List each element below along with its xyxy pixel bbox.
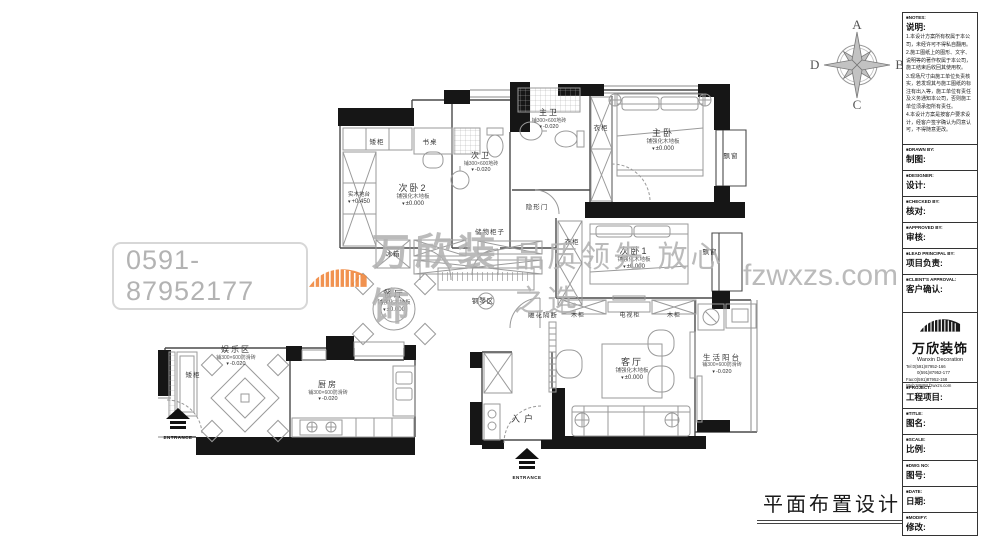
room-name: 主卫 (532, 108, 567, 118)
room-name: 次卫 (464, 151, 499, 161)
room-floor-spec: 铺300×600防滑砖 (702, 362, 742, 368)
room-label-master-bath: 主卫 铺300×600地砖 -0.020 (532, 108, 567, 131)
room-level: ±0.000 (615, 375, 648, 383)
company-name-cn: 万欣装饰 (906, 338, 974, 357)
field-modify: ■MODIFY: 修改: (903, 513, 977, 535)
room-level: +0.450 (348, 199, 370, 207)
room-name: 入户 (511, 414, 537, 425)
note-item: 2.施工图纸上的图形、文字、说明等的著作权属于本公司，施工结束后收回其使用权。 (906, 50, 974, 73)
tag-bay-window-bedroom1: 飘窗 (703, 246, 718, 256)
room-floor-spec: 铺强化木地板 (396, 194, 429, 201)
room-floor-spec: 铺强化木地板 (377, 300, 410, 307)
field-label-en: ■TITLE: (906, 411, 974, 416)
room-level: -0.020 (532, 124, 567, 131)
field-label-en: ■DATE: (906, 489, 974, 494)
field-dwg-no: ■DWG NO: 图号: (903, 461, 977, 487)
room-label-tatami: 实木地台 +0.450 (348, 192, 370, 206)
field-label-cn: 日期: (906, 495, 974, 507)
room-label-living: 客厅 铺强化木地板 ±0.000 (615, 357, 648, 383)
room-level: -0.020 (464, 167, 499, 174)
field-label-cn: 图名: (906, 417, 974, 429)
tag-wood-cabinet-left: 木柜 (571, 310, 585, 319)
company-name-en: Wanxin Decoration (906, 357, 974, 363)
room-level: ±0.000 (646, 146, 679, 154)
tag-wardrobe-bedroom1: 衣柜 (565, 236, 580, 246)
field-label-cn: 设计: (906, 179, 974, 191)
room-name: 次卧2 (396, 183, 429, 194)
room-name: 生活阳台 (702, 353, 742, 362)
room-label-entry: 入户 (511, 414, 537, 425)
field-client-approval: ■CLIENT'S APPROVAL: 客户确认: (903, 275, 977, 313)
room-floor-spec: 铺强化木地板 (646, 139, 679, 146)
compass-letter-bottom: C (853, 97, 862, 113)
room-name: 主卧 (646, 128, 679, 139)
tag-desk: 书桌 (423, 136, 438, 146)
compass-letter-top: A (852, 17, 861, 33)
room-label-bedroom1: 次卧1 铺强化木地板 ±0.000 (617, 246, 650, 272)
field-label-en: ■MODIFY: (906, 515, 974, 520)
room-label-master-bedroom: 主卧 铺强化木地板 ±0.000 (646, 128, 679, 154)
field-label-cn: 工程项目: (906, 391, 974, 403)
field-designer: ■DESIGNER: 设计: (903, 171, 977, 197)
tag-wardrobe-master: 衣柜 (594, 122, 609, 132)
field-approved-by: ■APPROVED BY: 审核: (903, 223, 977, 249)
tag-carved-partition: 雕花隔断 (528, 309, 558, 319)
field-checked-by: ■CHECKED BY: 核对: (903, 197, 977, 223)
entrance-label: ENTRANCE (505, 475, 549, 480)
entrance-marker-side: ENTRANCE (156, 408, 200, 440)
notes-label-cn: 说明: (906, 21, 974, 33)
field-scale: ■SCALE: 比例: (903, 435, 977, 461)
notes-label-en: ■NOTES: (906, 15, 974, 20)
tag-storage-cabinet: 储物柜子 (475, 226, 505, 236)
room-level: ±0.000 (377, 307, 410, 315)
field-label-en: ■LEAD PRINCIPAL BY: (906, 251, 974, 256)
note-item: 3.现场尺寸由施工单位负责核实，若发现其与施工图纸的标注有出入等，施工单位有责任… (906, 74, 974, 112)
field-label-cn: 制图: (906, 153, 974, 165)
tag-low-cabinet-left: 矮柜 (186, 369, 201, 379)
room-floor-spec: 铺强化木地板 (617, 257, 650, 264)
room-label-kitchen: 厨房 铺300×600防滑砖 -0.020 (308, 380, 348, 403)
room-name: 娱乐区 (216, 345, 256, 355)
company-logo-block: 万欣装饰 Wanxin Decoration Tel:0(591)87952-1… (903, 313, 977, 383)
entrance-label: ENTRANCE (156, 435, 200, 440)
field-label-en: ■SCALE: (906, 437, 974, 442)
room-name: 客厅 (615, 357, 648, 368)
tag-bay-window-master: 飘窗 (724, 150, 739, 160)
field-label-cn: 图号: (906, 469, 974, 481)
field-label-cn: 比例: (906, 443, 974, 455)
note-item: 4.本设计方案是按客户要求设计，经客户签字确认为同意认可，不得随意更改。 (906, 112, 974, 135)
room-label-bedroom2: 次卧2 铺强化木地板 ±0.000 (396, 183, 429, 209)
tag-tv-cabinet: 电视柜 (619, 310, 640, 319)
room-name: 餐厅 (377, 289, 410, 300)
room-level: -0.020 (702, 369, 742, 376)
room-label-balcony: 生活阳台 铺300×600防滑砖 -0.020 (702, 353, 742, 376)
room-label-dining: 餐厅 铺强化木地板 ±0.000 (377, 289, 410, 315)
room-level: ±0.000 (396, 201, 429, 209)
entrance-arrow-icon (166, 408, 190, 430)
field-label-cn: 客户确认: (906, 283, 974, 295)
room-level: ±0.000 (617, 264, 650, 272)
field-drawn-by: ■DRAWN BY: 制图: (903, 145, 977, 171)
field-label-en: ■CLIENT'S APPROVAL: (906, 277, 974, 282)
field-title: ■TITLE: 图名: (903, 409, 977, 435)
field-label-en: ■DESIGNER: (906, 173, 974, 178)
room-label-entertainment: 娱乐区 铺300×600防滑砖 -0.020 (216, 345, 256, 368)
field-label-cn: 审核: (906, 231, 974, 243)
field-label-en: ■PROJECT: (906, 385, 974, 390)
tag-low-cabinet: 矮柜 (370, 136, 385, 146)
note-item: 1.本设计方案所有权属于本公司，未经许可不得私自翻用。 (906, 34, 974, 49)
title-block: ■NOTES: 说明: 1.本设计方案所有权属于本公司，未经许可不得私自翻用。 … (902, 12, 978, 536)
field-label-en: ■DWG NO: (906, 463, 974, 468)
field-label-en: ■CHECKED BY: (906, 199, 974, 204)
room-name: 实木地台 (348, 192, 370, 199)
entrance-arrow-icon (515, 448, 539, 470)
room-floor-spec: 铺强化木地板 (615, 368, 648, 375)
room-name: 厨房 (308, 380, 348, 390)
tag-hidden-door: 隐形门 (526, 201, 549, 211)
tag-fridge: 冰箱 (386, 248, 401, 258)
field-label-en: ■APPROVED BY: (906, 225, 974, 230)
company-swoosh-icon (915, 315, 965, 333)
field-label-en: ■DRAWN BY: (906, 147, 974, 152)
room-level: -0.020 (308, 396, 348, 403)
tag-wood-cabinet-right: 木柜 (667, 310, 681, 319)
room-name: 次卧1 (617, 246, 650, 257)
notes-section: ■NOTES: 说明: 1.本设计方案所有权属于本公司，未经许可不得私自翻用。 … (903, 13, 977, 145)
field-date: ■DATE: 日期: (903, 487, 977, 513)
drawing-sheet: 次卧2 铺强化木地板 ±0.000 实木地台 +0.450 次卫 铺300×60… (0, 0, 983, 549)
room-level: -0.020 (216, 361, 256, 368)
tag-piano-area: 钢琴区 (472, 295, 495, 305)
field-lead-principal: ■LEAD PRINCIPAL BY: 项目负责: (903, 249, 977, 275)
field-label-cn: 修改: (906, 521, 974, 533)
compass-rose: A B C D (812, 20, 902, 110)
entrance-marker-main: ENTRANCE (505, 448, 549, 480)
field-label-cn: 核对: (906, 205, 974, 217)
field-label-cn: 项目负责: (906, 257, 974, 269)
compass-letter-left: D (810, 57, 819, 73)
room-label-bath2: 次卫 铺300×600地砖 -0.020 (464, 151, 499, 174)
field-project: ■PROJECT: 工程项目: (903, 383, 977, 409)
